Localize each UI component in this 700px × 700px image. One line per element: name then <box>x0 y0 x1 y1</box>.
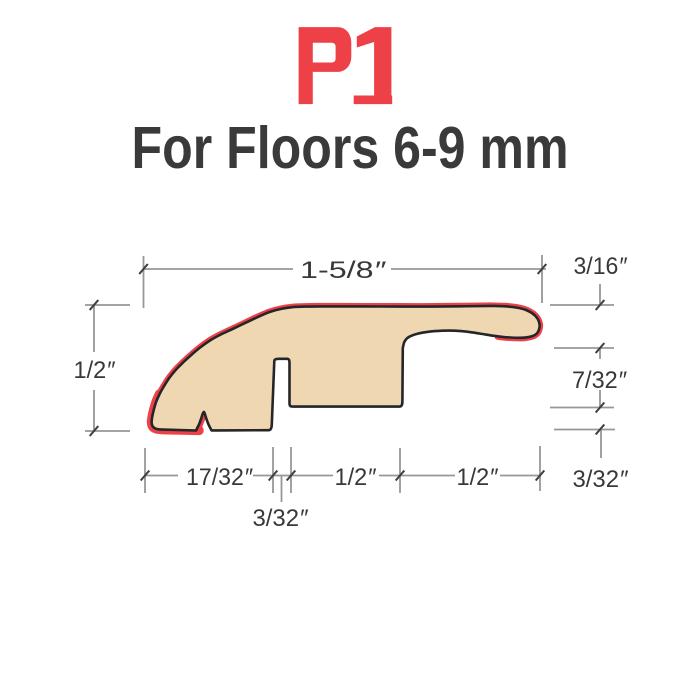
svg-text:1-5/8″: 1-5/8″ <box>300 257 387 284</box>
svg-text:For Floors 6-9 mm: For Floors 6-9 mm <box>132 115 569 181</box>
svg-text:1/2″: 1/2″ <box>457 464 499 491</box>
svg-text:17/32″: 17/32″ <box>186 464 253 491</box>
svg-text:7/32″: 7/32″ <box>572 367 627 394</box>
svg-text:3/16″: 3/16″ <box>574 253 628 280</box>
svg-text:3/32″: 3/32″ <box>573 466 629 493</box>
svg-text:1/2″: 1/2″ <box>74 357 116 384</box>
svg-text:3/32″: 3/32″ <box>253 505 309 532</box>
svg-text:1/2″: 1/2″ <box>335 464 377 491</box>
